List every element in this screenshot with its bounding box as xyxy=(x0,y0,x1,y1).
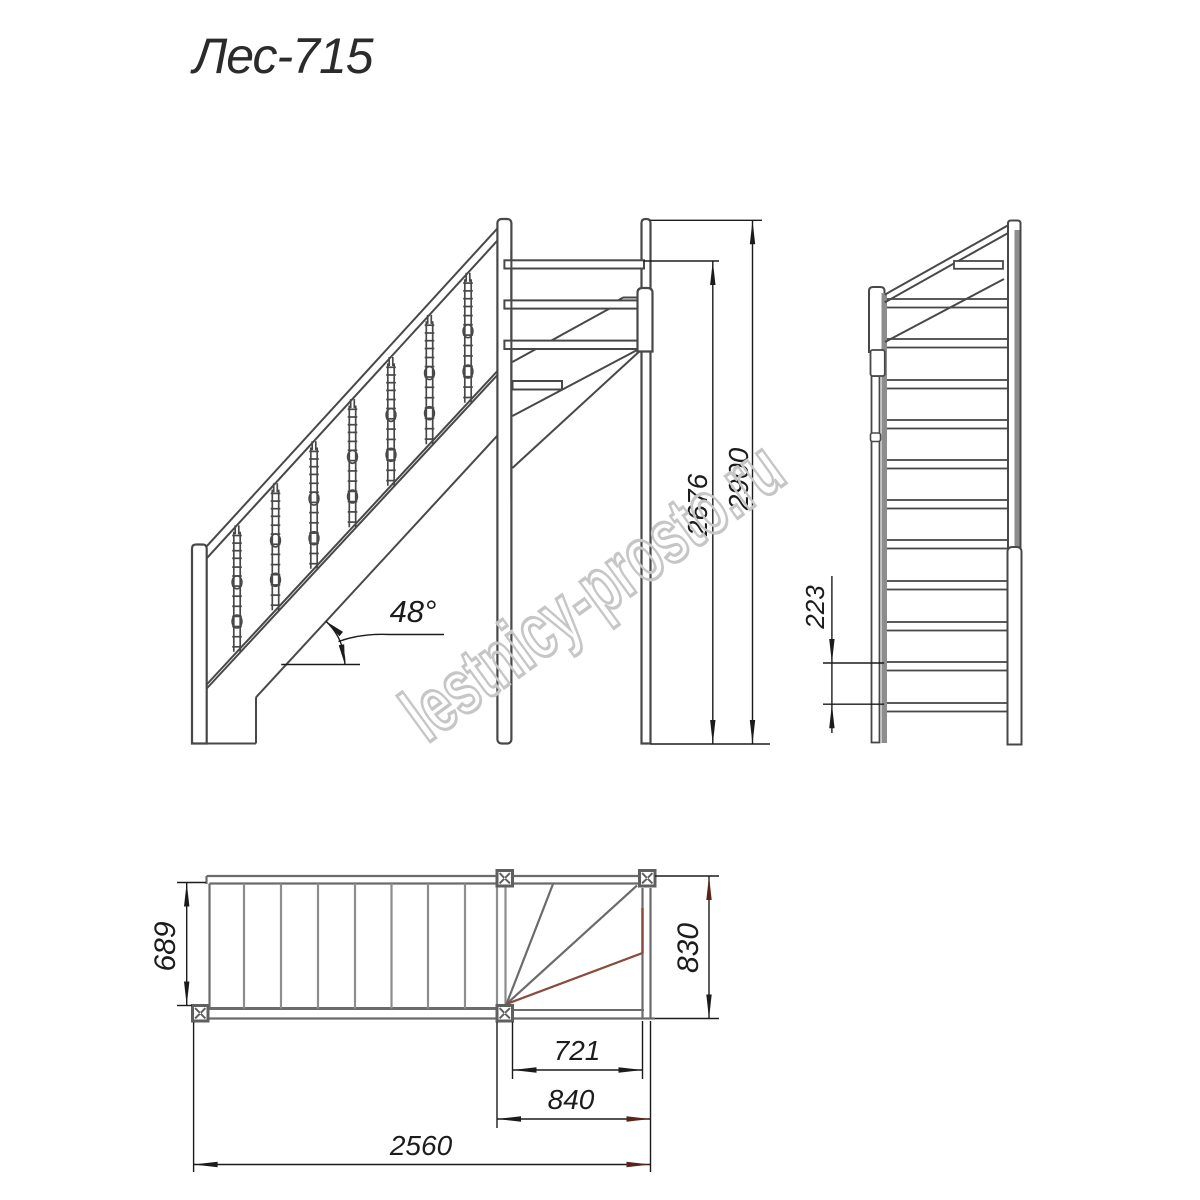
svg-text:Лес-715: Лес-715 xyxy=(190,28,374,84)
svg-text:2560: 2560 xyxy=(389,1130,453,1161)
svg-text:48°: 48° xyxy=(390,594,437,629)
svg-text:721: 721 xyxy=(554,1035,601,1066)
svg-text:223: 223 xyxy=(800,585,830,630)
svg-text:840: 840 xyxy=(548,1084,595,1115)
svg-text:689: 689 xyxy=(149,921,182,971)
svg-text:830: 830 xyxy=(672,923,705,973)
